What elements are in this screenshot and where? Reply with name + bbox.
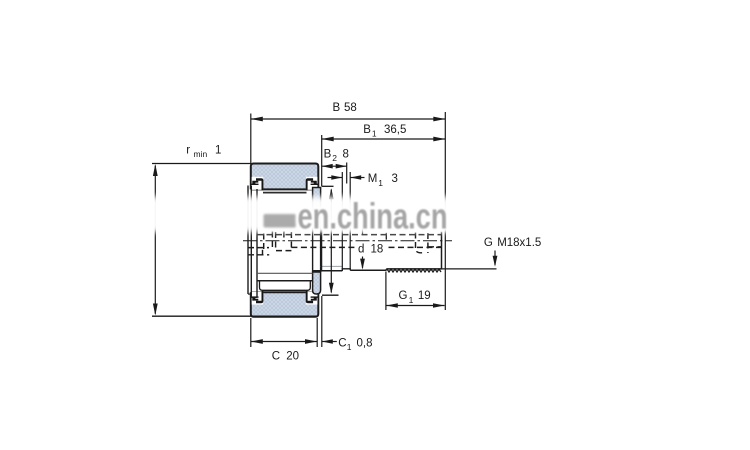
svg-text:8: 8 bbox=[343, 148, 349, 160]
svg-text:C: C bbox=[272, 351, 280, 363]
svg-text:1: 1 bbox=[378, 178, 383, 188]
svg-text:B: B bbox=[333, 102, 341, 114]
svg-text:2: 2 bbox=[332, 153, 337, 163]
svg-text:M18x1.5: M18x1.5 bbox=[497, 237, 541, 249]
svg-text:G: G bbox=[399, 290, 408, 302]
svg-text:19: 19 bbox=[418, 290, 431, 302]
svg-text:en.china.cn: en.china.cn bbox=[298, 196, 448, 237]
svg-text:0,8: 0,8 bbox=[357, 337, 373, 349]
svg-text:B: B bbox=[363, 124, 371, 136]
svg-text:min: min bbox=[194, 149, 208, 159]
svg-text:3: 3 bbox=[392, 173, 398, 185]
svg-text:d: d bbox=[358, 243, 364, 255]
svg-text:1: 1 bbox=[372, 129, 377, 139]
svg-text:C: C bbox=[338, 337, 346, 349]
svg-text:r: r bbox=[186, 144, 190, 156]
svg-text:18: 18 bbox=[371, 243, 384, 255]
svg-text:B: B bbox=[324, 148, 332, 160]
svg-text:1: 1 bbox=[215, 144, 221, 156]
svg-text:20: 20 bbox=[286, 351, 299, 363]
svg-text:1: 1 bbox=[409, 295, 414, 305]
svg-text:1: 1 bbox=[347, 342, 352, 352]
svg-text:36,5: 36,5 bbox=[384, 124, 406, 136]
svg-text:G: G bbox=[484, 237, 493, 249]
svg-text:M: M bbox=[368, 173, 378, 185]
svg-text:58: 58 bbox=[344, 102, 357, 114]
